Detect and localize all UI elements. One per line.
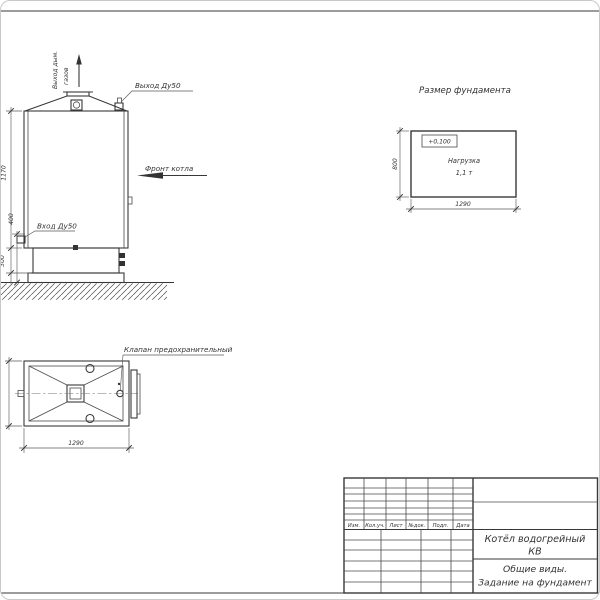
column-header-ndok: №док. (408, 523, 426, 529)
dim-1290-topview-value: 1290 (68, 440, 84, 447)
sheet-frame (1, 11, 600, 593)
dim-300-value: 300 (1, 255, 6, 267)
elevation-mark-value: +0,100 (428, 139, 451, 146)
safety-valve-leader (120, 355, 224, 390)
load-label-line2: 1,1 т (456, 169, 473, 177)
ground (1, 283, 174, 300)
product-name-line1: Котёл водогрейный (485, 534, 586, 545)
front-arrow (137, 172, 207, 178)
column-header-data: Дата (455, 523, 469, 529)
front-view: Выход дым. газов Выход Ду50 (1, 51, 207, 300)
column-header-izm: Изм. (348, 523, 360, 529)
small-port (118, 383, 120, 385)
outlet-du50-leader (121, 91, 193, 102)
document-name-line1: Общие виды. (503, 564, 567, 575)
flue-gas-label-line2: газов (63, 67, 70, 85)
flue-gas-label-line1: Выход дым. (52, 51, 59, 89)
dim-1170 (6, 107, 31, 284)
boiler-base (28, 248, 125, 283)
title-block: Изм. Кол.уч. Лист №док. Подп. Дата Котёл… (344, 478, 598, 593)
load-label-line1: Нагрузка (448, 157, 480, 165)
safety-valve-label: Клапан предохранительный (124, 345, 233, 354)
drawing-sheet: Выход дым. газов Выход Ду50 (0, 0, 600, 600)
dim-1290-foundation-value: 1290 (455, 201, 471, 208)
outlet-du50-label: Выход Ду50 (135, 81, 181, 90)
inlet-du50-nozzle (17, 231, 75, 243)
signature-table (344, 530, 473, 594)
dim-400 (12, 231, 25, 285)
column-header-podp: Подп. (433, 523, 449, 529)
right-attachment (131, 370, 140, 418)
flue-gas-arrow (76, 54, 82, 87)
product-name-line2: КВ (528, 547, 541, 558)
engineering-drawing: Выход дым. газов Выход Ду50 (1, 1, 600, 600)
foundation-title: Размер фундамента (419, 86, 511, 96)
boiler-cap (25, 92, 127, 111)
column-header-list: Лист (388, 523, 403, 529)
dim-1170-value: 1170 (1, 165, 8, 181)
top-view: Клапан предохранительный 1290 (5, 345, 233, 453)
front-of-boiler-label: Фронт котла (145, 164, 193, 173)
dim-800-value: 800 (392, 158, 399, 170)
document-name-line2: Задание на фундамент (478, 578, 592, 589)
inlet-du50-label: Вход Ду50 (37, 222, 77, 231)
dim-400-value: 400 (8, 213, 15, 225)
column-header-koluch: Кол.уч. (365, 523, 385, 529)
foundation-view: Размер фундамента +0,100 Нагрузка 1,1 т … (392, 86, 521, 213)
ground-hatch (1, 283, 167, 300)
